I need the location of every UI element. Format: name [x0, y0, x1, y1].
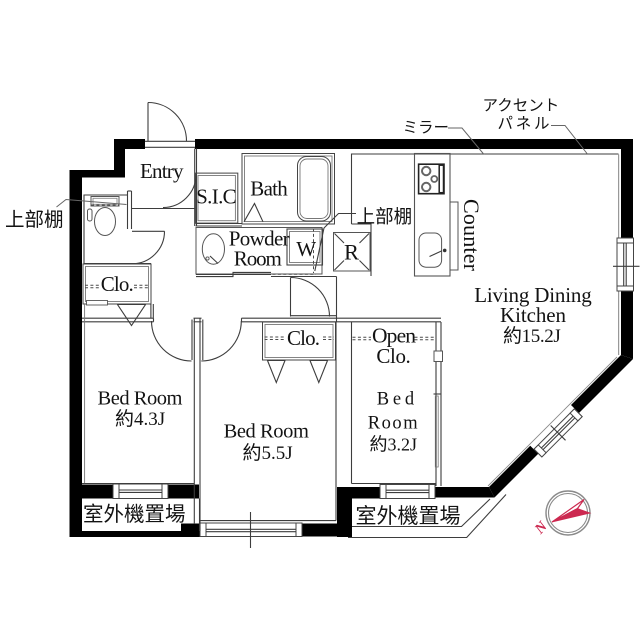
- svg-text:W: W: [296, 237, 316, 261]
- svg-text:Clo.: Clo.: [376, 344, 410, 368]
- svg-text:Room: Room: [234, 247, 282, 271]
- svg-text:上部棚: 上部棚: [5, 209, 64, 231]
- svg-text:Room: Room: [368, 413, 419, 433]
- svg-text:Counter: Counter: [459, 199, 484, 272]
- svg-text:室外機置場: 室外機置場: [356, 504, 461, 528]
- svg-text:約5.5J: 約5.5J: [243, 442, 293, 464]
- svg-text:約3.2J: 約3.2J: [370, 435, 418, 455]
- svg-text:パネル: パネル: [498, 115, 550, 133]
- svg-text:約15.2J: 約15.2J: [503, 325, 561, 347]
- svg-text:Bed Room: Bed Room: [224, 420, 309, 442]
- svg-text:Bed Room: Bed Room: [98, 388, 183, 410]
- svg-text:Kitchen: Kitchen: [500, 303, 567, 327]
- svg-text:約4.3J: 約4.3J: [115, 408, 165, 430]
- svg-text:R: R: [344, 240, 359, 265]
- svg-text:アクセント: アクセント: [483, 97, 560, 115]
- svg-text:S.I.C: S.I.C: [196, 185, 237, 209]
- svg-text:ミラー: ミラー: [403, 120, 450, 137]
- svg-text:上部棚: 上部棚: [357, 207, 413, 228]
- svg-text:室外機置場: 室外機置場: [83, 503, 186, 526]
- svg-text:Bath: Bath: [250, 177, 288, 201]
- svg-text:Clo.: Clo.: [287, 326, 320, 350]
- svg-text:Clo.: Clo.: [101, 272, 134, 296]
- svg-text:Bed: Bed: [377, 390, 415, 410]
- svg-text:Entry: Entry: [140, 159, 184, 183]
